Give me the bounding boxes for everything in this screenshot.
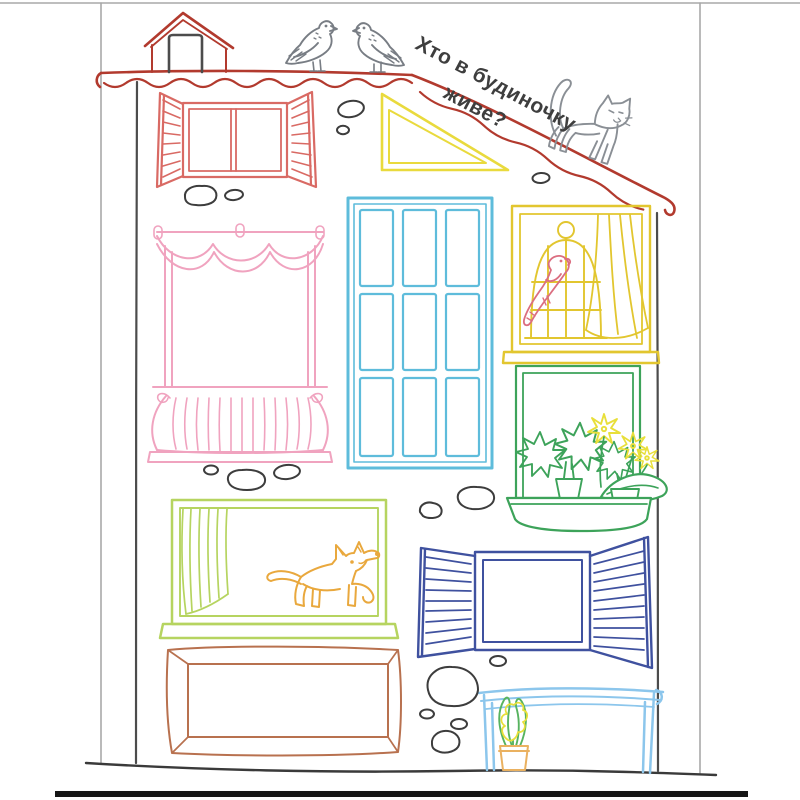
bottom-bar bbox=[55, 791, 748, 797]
coloring-page: Хто в будиночку живе? bbox=[0, 0, 800, 800]
pigeon-eye bbox=[363, 27, 366, 30]
dog-nose bbox=[375, 552, 379, 556]
hyacinth-pot bbox=[499, 746, 529, 770]
wall-left bbox=[136, 82, 137, 763]
house-illustration: Хто в будиночку живе? bbox=[0, 0, 800, 800]
flower-box bbox=[507, 498, 651, 531]
dog-eye bbox=[350, 560, 354, 564]
parrot-eye bbox=[560, 260, 563, 263]
pigeon-eye bbox=[325, 25, 328, 28]
plant-pot-1 bbox=[556, 479, 582, 499]
